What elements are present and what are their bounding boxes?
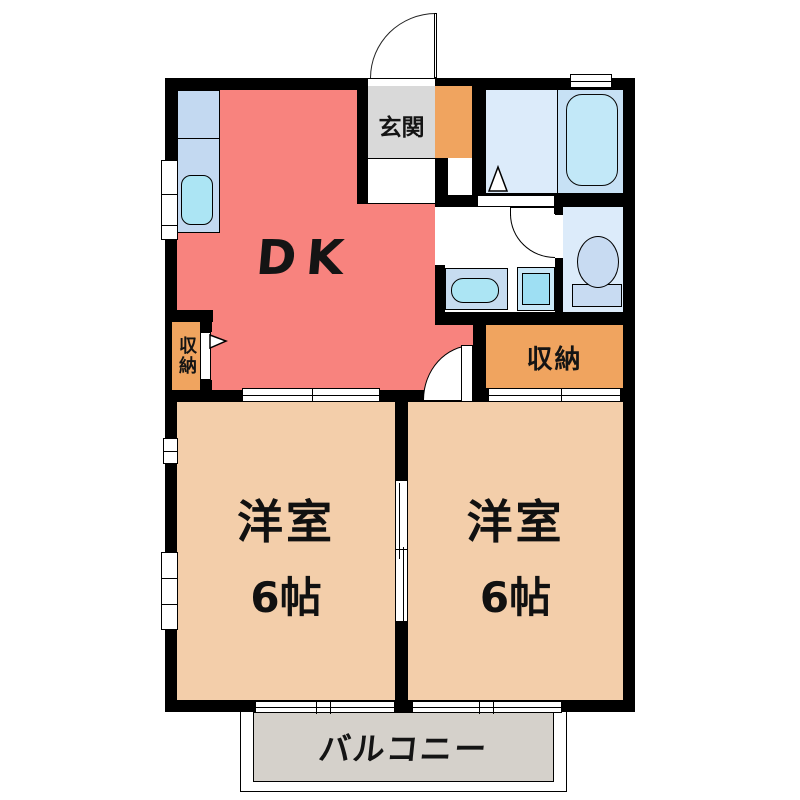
window-left-lower	[161, 552, 178, 630]
washing-machine-pan-inner	[522, 273, 550, 305]
bedroom-left-size: 6帖	[177, 564, 395, 625]
vanity-basin	[451, 278, 499, 303]
hall-nook	[448, 158, 472, 195]
kitchen-sink	[181, 175, 213, 225]
bath-door-triangle-icon	[487, 165, 509, 193]
wall-closet-left-top	[165, 310, 213, 322]
closet-left-label: 収納	[172, 324, 200, 388]
entrance-step	[368, 158, 435, 204]
entrance-label: 玄関	[368, 110, 435, 140]
wall-vanity-left	[435, 265, 445, 313]
closet-right-sliding-door	[488, 388, 621, 402]
entrance-doorway	[368, 78, 435, 86]
sliding-door-bedrooms	[395, 480, 408, 622]
window-balcony-left	[255, 701, 395, 713]
wall-closet-left-b	[200, 380, 212, 390]
closet-right-label: 収納	[486, 341, 623, 373]
door-leaf-dk-bedroom-right	[461, 345, 473, 402]
bedroom-right-label: 洋室 6帖	[408, 486, 623, 625]
bedroom-right-name: 洋室	[408, 486, 623, 552]
window-balcony-right	[412, 701, 562, 713]
bedroom-right-size: 6帖	[408, 564, 623, 625]
balcony: バルコニー	[240, 706, 567, 792]
balcony-deck: バルコニー	[253, 712, 554, 782]
window-left-upper	[161, 160, 178, 240]
wall-closet-left-a	[200, 322, 212, 332]
entrance-door-arc-icon	[370, 13, 436, 78]
dk-label: DK	[202, 228, 407, 288]
toilet-bowl	[577, 236, 619, 288]
shoe-cabinet	[435, 86, 472, 158]
window-top-bathroom	[570, 74, 612, 88]
window-left-mid	[163, 438, 178, 464]
entrance-door-leaf	[434, 13, 437, 78]
floor-plan: バルコニー	[0, 0, 800, 800]
bedroom-left-label: 洋室 6帖	[177, 486, 395, 625]
closet-left-triangle-icon	[209, 334, 228, 350]
bath-door	[477, 195, 555, 207]
bathtub	[566, 94, 618, 186]
sliding-door-dk-bedroom-left	[242, 388, 380, 402]
bedroom-left-name: 洋室	[177, 486, 395, 552]
balcony-label: バルコニー	[316, 724, 490, 770]
